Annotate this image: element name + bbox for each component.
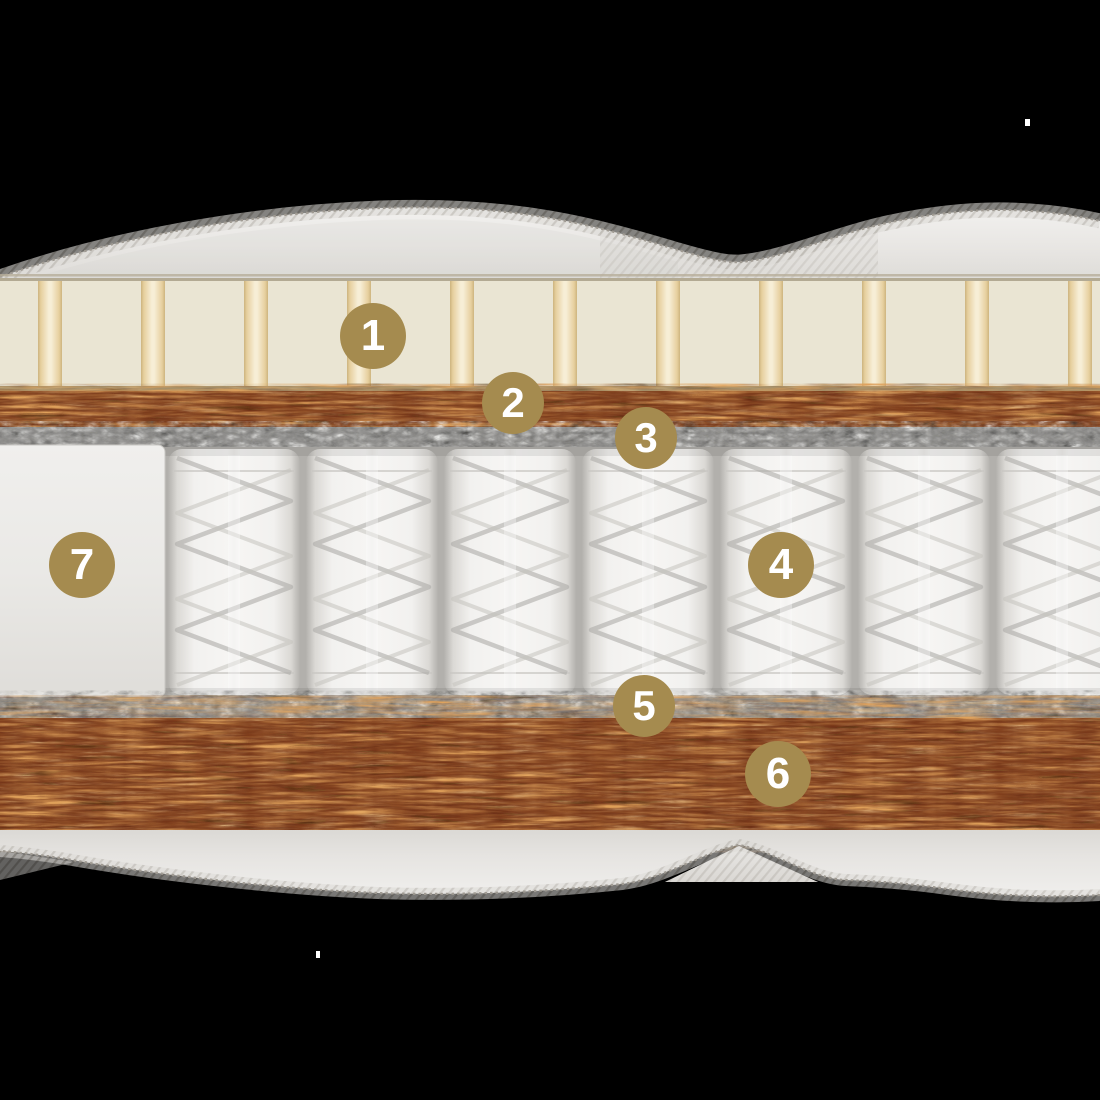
spring-pocket xyxy=(996,449,1100,695)
bottom-cover-layer xyxy=(0,830,1100,896)
coir-layer-top xyxy=(0,391,1100,427)
cover-latex-seam xyxy=(0,274,1100,277)
felt-layer-bottom xyxy=(0,697,1100,718)
badge-3: 3 xyxy=(615,407,677,469)
latex-bottom-border xyxy=(0,386,1100,391)
spring-pocket xyxy=(858,449,990,695)
spring-pocket xyxy=(168,449,300,695)
badge-6: 6 xyxy=(745,741,811,807)
felt-layer-top xyxy=(0,427,1100,447)
white-speck-top-right xyxy=(1025,119,1030,126)
latex-layer xyxy=(0,278,1100,391)
coir-layer-bottom xyxy=(0,718,1100,830)
badge-number: 3 xyxy=(634,417,657,459)
badge-7: 7 xyxy=(49,532,115,598)
spring-pocket xyxy=(444,449,576,695)
badge-number: 1 xyxy=(361,314,385,358)
mattress-illustration xyxy=(0,0,1100,1100)
badge-number: 5 xyxy=(632,685,655,727)
badge-2: 2 xyxy=(482,372,544,434)
top-cover-layer xyxy=(0,207,1100,289)
badge-number: 4 xyxy=(769,543,793,587)
mattress-cross-section-diagram: 1 2 3 4 5 6 7 xyxy=(0,0,1100,1100)
badge-1: 1 xyxy=(340,303,406,369)
badge-number: 6 xyxy=(766,752,790,796)
badge-number: 2 xyxy=(501,382,524,424)
spring-pocket xyxy=(582,449,714,695)
white-speck-bottom-left xyxy=(316,951,320,958)
badge-4: 4 xyxy=(748,532,814,598)
spring-pocket xyxy=(306,449,438,695)
badge-5: 5 xyxy=(613,675,675,737)
badge-number: 7 xyxy=(70,543,94,587)
